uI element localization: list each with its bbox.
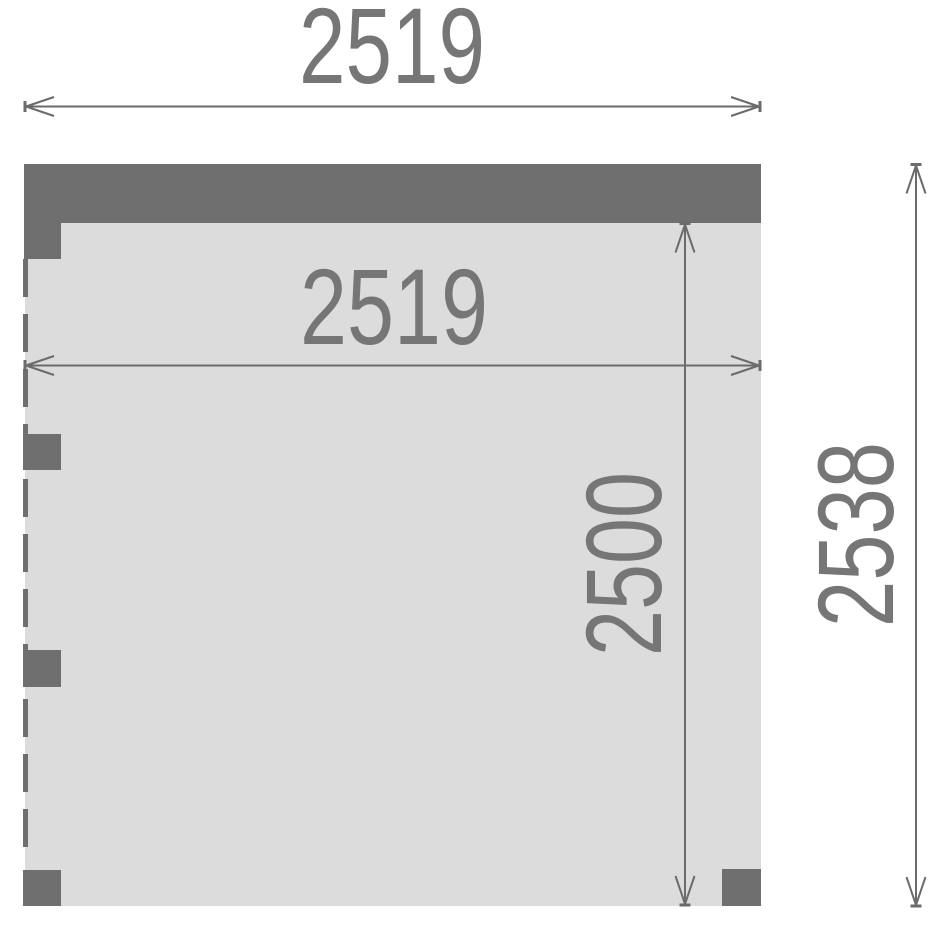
svg-text:2519: 2519 — [299, 0, 485, 106]
svg-text:2519: 2519 — [300, 246, 488, 367]
svg-text:2538: 2538 — [795, 442, 916, 627]
svg-text:2500: 2500 — [563, 472, 684, 656]
